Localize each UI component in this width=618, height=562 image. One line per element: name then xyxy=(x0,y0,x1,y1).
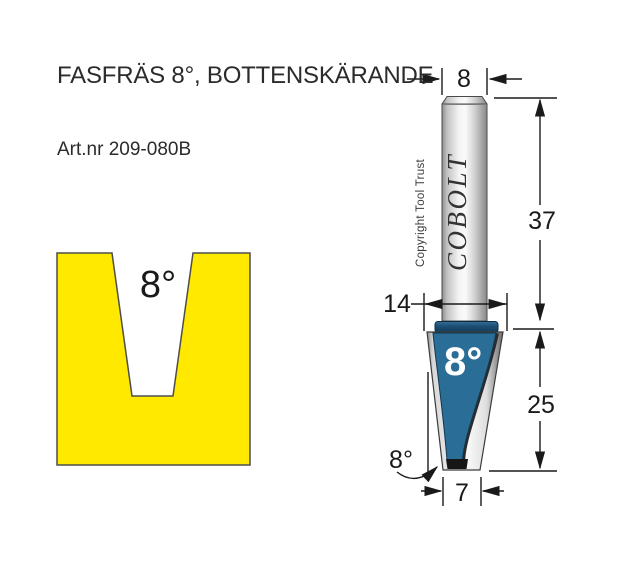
article-number: Art.nr 209-080B xyxy=(57,139,191,161)
product-diagram-page: FASFRÄS 8°, BOTTENSKÄRANDE Art.nr 209-08… xyxy=(0,0,618,562)
dim-value-shank-diameter: 8 xyxy=(457,65,471,93)
dim-value-cutter-top-width: 14 xyxy=(383,290,411,318)
dim-value-bevel-angle: 8° xyxy=(389,446,413,474)
page-title: FASFRÄS 8°, BOTTENSKÄRANDE xyxy=(57,62,433,90)
dim-shank-length: 37 xyxy=(494,98,557,320)
groove-profile: 8° xyxy=(57,253,250,465)
shank-top-cap xyxy=(442,97,487,105)
brand-text: COBOLT xyxy=(442,153,472,271)
dim-value-tip-width: 7 xyxy=(455,479,469,507)
dim-value-shank-length: 37 xyxy=(528,207,556,235)
dim-bevel-angle: 8° xyxy=(389,372,437,478)
cutter-bottom-edge xyxy=(446,459,468,469)
dim-value-cutter-length: 25 xyxy=(527,391,555,419)
copyright-text: Copyright Tool Trust xyxy=(415,158,427,267)
dim-tip-width: 7 xyxy=(421,477,504,507)
collar xyxy=(435,322,498,333)
cutter-face-angle-label: 8° xyxy=(444,340,482,384)
groove-angle-label: 8° xyxy=(140,264,176,306)
